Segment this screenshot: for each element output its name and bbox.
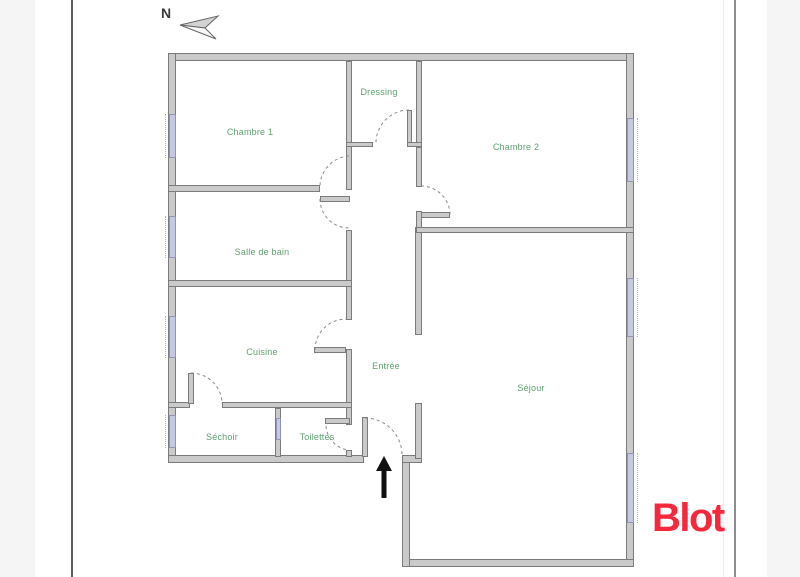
window-cuisine xyxy=(169,316,176,358)
room-label-sejour: Séjour xyxy=(517,383,544,393)
wall-hall-left-low2 xyxy=(346,450,352,457)
wall-sejour-north xyxy=(416,227,634,233)
wall-hall-left-mid xyxy=(346,230,352,320)
door-leaf-entrance xyxy=(362,417,368,457)
document-sheet xyxy=(35,0,767,577)
wall-sechoir-top-r xyxy=(222,402,352,408)
wall-sdb-south xyxy=(168,280,352,287)
window-dash xyxy=(165,216,166,258)
room-label-salle-de-bain: Salle de bain xyxy=(235,247,290,257)
door-leaf-cuisine xyxy=(314,347,346,353)
wall-sejour-west-lower xyxy=(402,461,410,567)
wall-sejour-bottom xyxy=(402,559,634,567)
window-dash xyxy=(637,453,638,523)
window-chambre1 xyxy=(169,114,176,158)
wall-chambre1-east xyxy=(346,61,352,190)
page-border-faint xyxy=(723,0,724,577)
room-label-sechoir: Séchoir xyxy=(206,432,238,442)
room-label-toilettes: Toilettes xyxy=(300,432,335,442)
door-leaf-toilettes xyxy=(325,418,350,424)
compass-north-label: N xyxy=(161,5,171,21)
wall-hall-left-low xyxy=(346,349,352,425)
room-label-chambre1: Chambre 1 xyxy=(227,127,273,137)
wall-sejour-west-upper xyxy=(415,227,422,335)
wall-outer-top xyxy=(168,53,634,61)
wall-dressing-east xyxy=(416,61,422,147)
window-dash xyxy=(165,415,166,448)
room-label-chambre2: Chambre 2 xyxy=(493,142,539,152)
window-sechoir xyxy=(169,415,176,448)
door-leaf-salle-de-bain xyxy=(320,196,350,202)
room-label-dressing: Dressing xyxy=(360,87,397,97)
wall-chambre1-south xyxy=(168,185,320,192)
window-toilettes-wall xyxy=(276,418,281,440)
door-leaf-dressing xyxy=(407,110,412,143)
door-leaf-chambre2 xyxy=(421,212,450,218)
window-dash xyxy=(165,316,166,358)
wall-hall-right-upper xyxy=(416,147,422,187)
window-dash xyxy=(165,114,166,158)
blot-logo: Blot xyxy=(652,498,724,538)
wall-outer-bottom-left xyxy=(168,455,364,463)
window-salle-de-bain xyxy=(169,216,176,258)
room-label-cuisine: Cuisine xyxy=(246,347,277,357)
page-border-left xyxy=(71,0,73,577)
wall-sejour-west-mid xyxy=(415,403,422,459)
door-leaf-sechoir xyxy=(188,373,194,404)
window-sejour-upper xyxy=(627,278,634,337)
wall-sechoir-top-l xyxy=(168,402,190,408)
room-label-entree: Entrée xyxy=(372,361,400,371)
window-dash xyxy=(637,118,638,182)
floor-plan-page: N xyxy=(0,0,800,577)
window-chambre2 xyxy=(627,118,634,182)
page-border-right xyxy=(734,0,736,577)
wall-dressing-bottom-l xyxy=(346,142,373,147)
window-dash xyxy=(637,278,638,337)
window-sejour-lower xyxy=(627,453,634,523)
